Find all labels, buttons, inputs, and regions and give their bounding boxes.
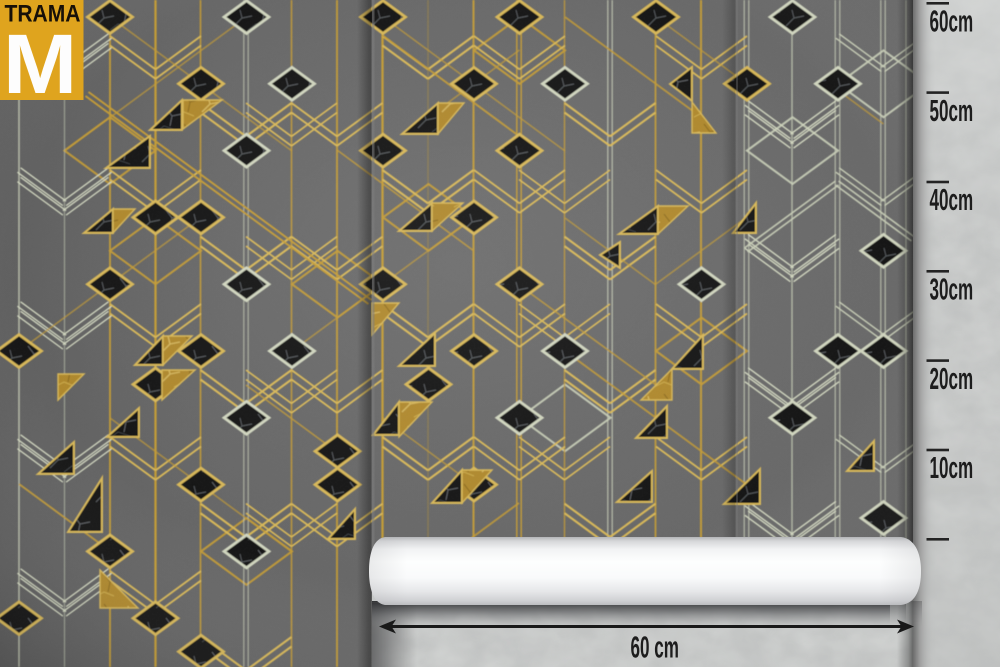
svg-text:40cm: 40cm [930, 184, 974, 217]
svg-text:10cm: 10cm [930, 452, 974, 485]
svg-text:60cm: 60cm [930, 6, 974, 39]
svg-text:20cm: 20cm [930, 363, 974, 396]
svg-text:M: M [3, 18, 77, 111]
svg-text:50cm: 50cm [930, 95, 974, 128]
svg-text:30cm: 30cm [930, 274, 974, 307]
svg-text:60 cm: 60 cm [631, 632, 679, 665]
